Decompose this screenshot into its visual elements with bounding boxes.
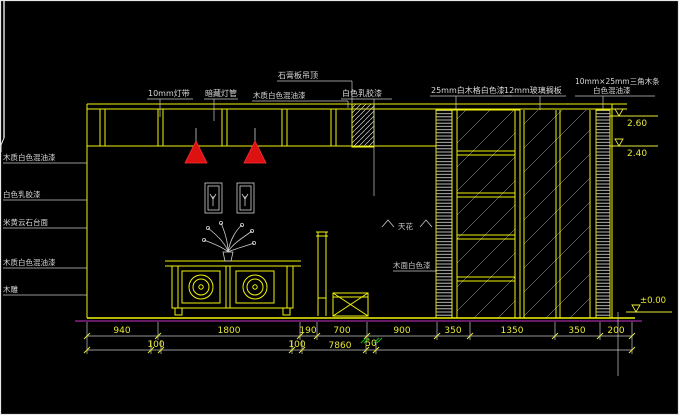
dimension-system: 940 1800 190 700 900 350 1350 350 200 10… (84, 312, 635, 376)
callout-wood-grid: 25mm白木格白色漆 (431, 85, 505, 95)
flower-arrangement (202, 221, 255, 261)
stool (333, 293, 368, 316)
dim-value: 350 (568, 326, 585, 336)
dim-value: 200 (607, 326, 624, 336)
dim-value: 350 (444, 326, 461, 336)
sideboard-cabinet (165, 261, 301, 315)
callout-wood-white-paint: 木质白色混油漆 (253, 90, 306, 100)
floor-lines (75, 318, 642, 321)
callout-hidden-lamp: 暗藏灯管 (205, 88, 237, 98)
ceiling-section-hatch (352, 104, 374, 147)
dim-value: 100 (288, 340, 305, 350)
level-marks: 2.60 2.40 ±0.00 (610, 109, 672, 312)
inline-label-ceiling: 天花 (398, 221, 413, 231)
level-triangle-icon (615, 109, 623, 116)
callout-left-wood-carving: 木雕 (3, 284, 18, 294)
callout-triangle-wood-strip: 10mm×25mm三角木条 (575, 76, 660, 86)
glass-panels (524, 110, 590, 318)
passage-annotations: 天花 木面白色漆 (382, 220, 437, 271)
callout-triangle-wood-strip-line2: 白色混油漆 (593, 85, 631, 95)
lamp-shade-icon (244, 141, 266, 163)
column-strip (436, 110, 452, 318)
wood-strip-band (596, 104, 612, 318)
elevation-drawing: 天花 木面白色漆 2.60 2.40 (0, 0, 679, 415)
callout-left-wood-white-paint: 木质白色混油漆 (3, 152, 56, 162)
callout-white-latex-paint: 白色乳胶漆 (342, 88, 382, 98)
dim-value: 1800 (218, 326, 241, 336)
callout-left-marble-counter: 米黄云石台面 (3, 217, 48, 227)
level-triangle-icon (632, 305, 640, 312)
callout-light-strip: 10mm灯带 (148, 88, 190, 98)
cad-canvas: 天花 木面白色漆 2.60 2.40 (0, 0, 679, 415)
left-callouts: 木质白色混油漆 白色乳胶漆 米黄云石台面 木质白色混油漆 木雕 (3, 152, 87, 295)
cabinet-leg (283, 308, 290, 315)
lamp-shade-icon (185, 141, 207, 163)
callout-left-wood-white-paint-2: 木质白色混油漆 (3, 257, 56, 267)
pedestal (316, 232, 328, 316)
dim-value: 190 (299, 326, 316, 336)
level-value-top: 2.60 (627, 119, 647, 129)
dim-value: 7860 (329, 341, 352, 351)
dim-value: 100 (147, 340, 164, 350)
break-line-icon (420, 220, 432, 227)
callout-glass-shelf: 12mm玻璃搁板 (504, 85, 562, 95)
level-triangle-icon (615, 139, 623, 146)
level-value-middle: 2.40 (627, 149, 647, 159)
dim-value: 1350 (501, 326, 524, 336)
level-value-floor: ±0.00 (640, 296, 666, 306)
dim-value: 700 (333, 326, 350, 336)
dim-value: 900 (393, 326, 410, 336)
display-cabinet (452, 110, 520, 318)
vase (223, 252, 233, 261)
callout-gypsum-ceiling: 石膏板吊顶 (278, 70, 318, 80)
cabinet-leg (175, 308, 182, 315)
callout-left-white-latex: 白色乳胶漆 (3, 189, 41, 199)
break-line-icon (382, 220, 394, 227)
wall-pictures (205, 183, 254, 213)
dim-value: 940 (113, 326, 130, 336)
inline-label-wood-face: 木面白色漆 (393, 260, 431, 270)
